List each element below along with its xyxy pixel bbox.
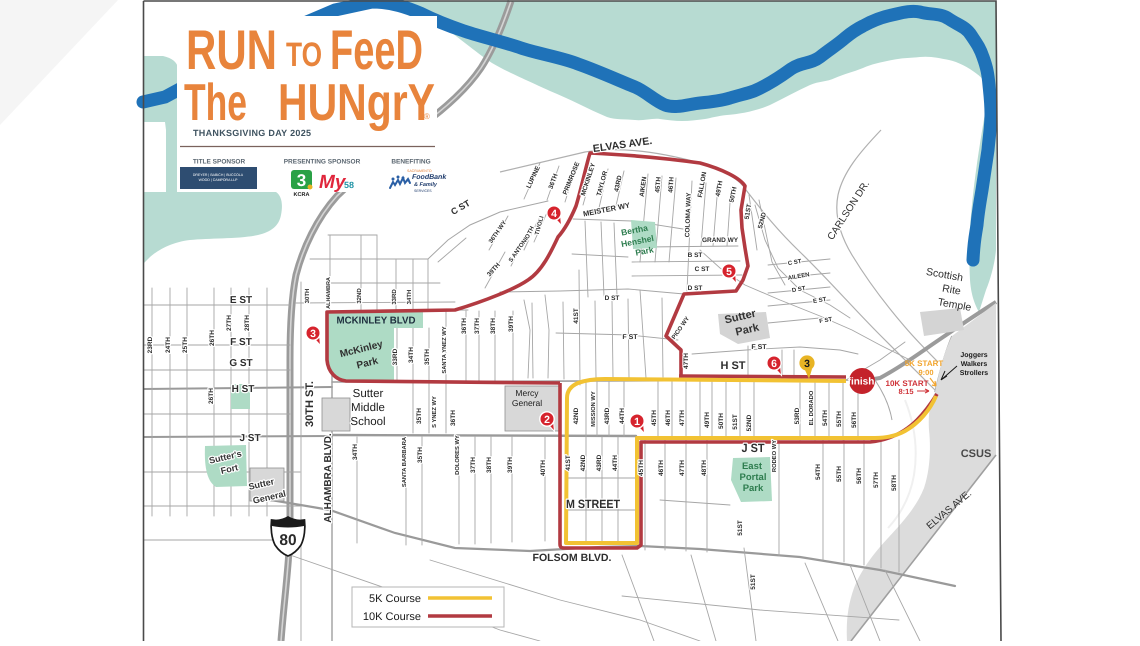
- svg-text:Strollers: Strollers: [960, 369, 989, 377]
- svg-text:& Family: & Family: [414, 182, 438, 188]
- svg-text:J ST: J ST: [742, 441, 766, 455]
- svg-text:RODEO WY: RODEO WY: [771, 440, 778, 472]
- svg-text:Park: Park: [743, 483, 764, 494]
- svg-text:49TH: 49TH: [704, 412, 711, 428]
- svg-text:F ST: F ST: [230, 337, 252, 348]
- svg-text:42ND: 42ND: [580, 454, 587, 471]
- svg-text:East: East: [742, 461, 763, 472]
- svg-text:B ST: B ST: [688, 252, 703, 259]
- svg-text:36TH: 36TH: [450, 410, 457, 426]
- svg-text:School: School: [350, 416, 385, 428]
- svg-text:38TH: 38TH: [490, 318, 497, 334]
- svg-text:J ST: J ST: [239, 433, 260, 444]
- svg-text:D ST: D ST: [688, 285, 703, 292]
- svg-text:25TH: 25TH: [182, 337, 189, 353]
- svg-text:8:15: 8:15: [898, 387, 913, 396]
- svg-text:52ND: 52ND: [746, 414, 753, 431]
- svg-text:51ST: 51ST: [750, 574, 757, 590]
- svg-text:34TH: 34TH: [352, 444, 359, 460]
- svg-text:SERVICES: SERVICES: [414, 189, 432, 193]
- svg-text:Walkers: Walkers: [961, 360, 988, 368]
- svg-text:BENEFITING: BENEFITING: [391, 159, 430, 166]
- svg-text:5K Course: 5K Course: [369, 593, 421, 605]
- svg-text:CSUS: CSUS: [961, 448, 992, 460]
- svg-text:10K Course: 10K Course: [363, 611, 421, 623]
- svg-text:H ST: H ST: [720, 360, 745, 372]
- svg-text:32ND: 32ND: [356, 288, 363, 304]
- svg-text:27TH: 27TH: [226, 315, 233, 331]
- svg-text:46TH: 46TH: [658, 460, 665, 476]
- svg-text:44TH: 44TH: [612, 455, 619, 471]
- svg-text:MISSION WY: MISSION WY: [590, 391, 597, 427]
- svg-text:M STREET: M STREET: [566, 497, 621, 511]
- svg-text:TO: TO: [286, 36, 322, 74]
- svg-text:26TH: 26TH: [208, 388, 215, 404]
- svg-text:ALHAMBRA: ALHAMBRA: [326, 277, 332, 309]
- svg-text:35TH: 35TH: [417, 447, 424, 463]
- svg-text:43RD: 43RD: [604, 407, 611, 424]
- svg-text:26TH: 26TH: [209, 330, 216, 346]
- svg-text:43RD: 43RD: [596, 454, 603, 471]
- svg-text:Portal: Portal: [740, 472, 767, 483]
- svg-text:FeeD: FeeD: [330, 18, 423, 81]
- svg-text:35TH: 35TH: [424, 349, 431, 365]
- svg-text:S YNEZ WY: S YNEZ WY: [431, 396, 438, 428]
- svg-text:GRAND WY: GRAND WY: [702, 237, 739, 244]
- svg-text:5: 5: [726, 266, 732, 278]
- svg-text:E ST: E ST: [230, 295, 252, 306]
- svg-text:ALHAMBRA BLVD.: ALHAMBRA BLVD.: [323, 433, 334, 523]
- svg-text:MCKINLEY BLVD: MCKINLEY BLVD: [337, 316, 416, 327]
- svg-text:WOOD | CAMPORA LLP: WOOD | CAMPORA LLP: [199, 178, 238, 182]
- svg-text:SACRAMENTO: SACRAMENTO: [407, 169, 432, 173]
- svg-text:37TH: 37TH: [474, 318, 481, 334]
- svg-text:38TH: 38TH: [486, 457, 493, 473]
- svg-text:23RD: 23RD: [147, 336, 154, 353]
- svg-text:The: The: [184, 74, 247, 132]
- svg-text:DOLORES WY: DOLORES WY: [454, 435, 461, 475]
- svg-text:6: 6: [771, 358, 777, 370]
- svg-text:My: My: [319, 172, 347, 193]
- svg-text:47TH: 47TH: [683, 353, 690, 369]
- svg-text:KCRA: KCRA: [294, 192, 310, 198]
- svg-text:48TH: 48TH: [701, 460, 708, 476]
- svg-text:51ST: 51ST: [737, 520, 744, 536]
- svg-text:Middle: Middle: [351, 402, 385, 414]
- svg-text:2: 2: [544, 414, 550, 426]
- svg-text:58TH: 58TH: [891, 475, 898, 491]
- svg-text:44TH: 44TH: [619, 408, 626, 424]
- svg-text:47TH: 47TH: [679, 460, 686, 476]
- svg-text:PRESENTING SPONSOR: PRESENTING SPONSOR: [284, 159, 361, 166]
- svg-text:41ST: 41ST: [573, 308, 580, 324]
- svg-text:37TH: 37TH: [470, 457, 477, 473]
- svg-text:4: 4: [551, 208, 557, 220]
- svg-text:SANTA YNEZ WY: SANTA YNEZ WY: [441, 326, 448, 373]
- svg-text:39TH: 39TH: [507, 457, 514, 473]
- svg-text:34TH: 34TH: [408, 347, 415, 363]
- svg-text:FOLSOM BLVD.: FOLSOM BLVD.: [533, 552, 612, 564]
- svg-text:D ST: D ST: [605, 295, 620, 302]
- svg-text:EL DORADO: EL DORADO: [808, 390, 815, 425]
- svg-text:41ST: 41ST: [565, 455, 572, 471]
- svg-text:SANTA BARBARA: SANTA BARBARA: [401, 436, 408, 487]
- svg-text:C ST: C ST: [695, 266, 710, 273]
- svg-text:THANKSGIVING DAY 2025: THANKSGIVING DAY 2025: [193, 128, 311, 138]
- svg-text:33RD: 33RD: [392, 348, 399, 365]
- svg-text:30TH: 30TH: [304, 289, 311, 304]
- svg-text:80: 80: [279, 532, 296, 549]
- svg-text:42ND: 42ND: [573, 407, 580, 424]
- svg-text:57TH: 57TH: [873, 472, 880, 488]
- svg-text:F ST: F ST: [622, 334, 638, 341]
- svg-text:47TH: 47TH: [679, 410, 686, 426]
- svg-text:56TH: 56TH: [856, 468, 863, 484]
- svg-text:45TH: 45TH: [651, 410, 658, 426]
- svg-text:55TH: 55TH: [836, 411, 843, 427]
- svg-text:finish: finish: [848, 377, 875, 388]
- svg-text:54TH: 54TH: [815, 464, 822, 480]
- svg-text:3: 3: [297, 171, 306, 190]
- svg-text:58: 58: [344, 180, 354, 190]
- svg-text:Sutter: Sutter: [353, 388, 384, 400]
- svg-text:Mercy: Mercy: [515, 388, 539, 398]
- svg-text:33RD: 33RD: [391, 289, 398, 305]
- svg-text:5K START: 5K START: [905, 359, 944, 368]
- svg-text:56TH: 56TH: [851, 412, 858, 428]
- svg-text:46TH: 46TH: [665, 410, 672, 426]
- svg-text:TITLE SPONSOR: TITLE SPONSOR: [193, 159, 246, 166]
- svg-text:24TH: 24TH: [165, 337, 172, 353]
- svg-text:45TH: 45TH: [654, 176, 662, 193]
- svg-text:39TH: 39TH: [508, 316, 515, 332]
- svg-text:Joggers: Joggers: [960, 352, 987, 359]
- svg-text:30TH ST.: 30TH ST.: [304, 381, 316, 427]
- svg-text:35TH: 35TH: [416, 408, 423, 424]
- svg-text:34TH: 34TH: [406, 290, 413, 305]
- svg-text:General: General: [512, 398, 542, 408]
- svg-text:DREYER | BABICH | BUCCOLA: DREYER | BABICH | BUCCOLA: [193, 173, 244, 177]
- svg-text:FoodBank: FoodBank: [412, 173, 447, 181]
- svg-text:45TH: 45TH: [638, 460, 645, 476]
- svg-text:3: 3: [804, 358, 810, 370]
- svg-text:F ST: F ST: [751, 344, 767, 351]
- svg-text:G ST: G ST: [229, 358, 252, 369]
- svg-text:54TH: 54TH: [822, 410, 829, 426]
- svg-text:HUNgrY: HUNgrY: [278, 74, 435, 132]
- svg-text:40TH: 40TH: [540, 460, 547, 476]
- svg-text:®: ®: [424, 112, 430, 121]
- svg-text:50TH: 50TH: [718, 413, 725, 429]
- svg-text:9:00: 9:00: [918, 368, 933, 377]
- svg-text:55TH: 55TH: [836, 466, 843, 482]
- svg-text:36TH: 36TH: [461, 318, 468, 334]
- svg-text:53RD: 53RD: [794, 407, 801, 424]
- svg-text:3: 3: [310, 328, 316, 340]
- svg-text:1: 1: [634, 416, 640, 428]
- svg-text:28TH: 28TH: [244, 315, 251, 331]
- svg-text:46TH: 46TH: [667, 176, 675, 193]
- svg-text:51ST: 51ST: [732, 414, 739, 430]
- svg-text:RUN: RUN: [186, 18, 277, 81]
- svg-text:H ST: H ST: [232, 384, 255, 395]
